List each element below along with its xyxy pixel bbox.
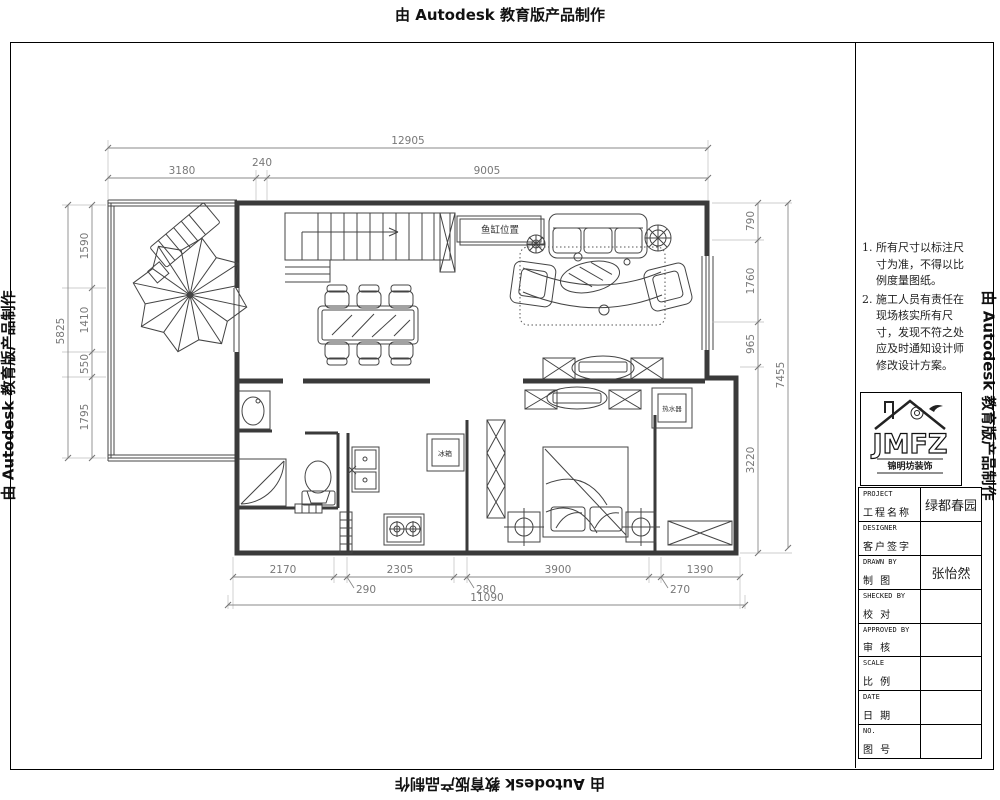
column-hatched [440,213,455,272]
approved-by-en: APPROVED BY [863,626,918,634]
kitchen-sink [348,447,379,492]
sofa [549,214,647,258]
svg-text:1795: 1795 [79,404,91,431]
project-value: 绿都春园 [921,488,981,521]
svg-text:270: 270 [670,584,690,596]
title-block: PROJECT 工程名称 绿都春园 DESIGNER 客户签字 DRAWN BY… [858,487,982,759]
scale-zh: 比 例 [863,673,918,688]
title-row-date: DATE 日 期 [859,691,981,725]
approved-by-zh: 审 核 [863,639,918,654]
fish-tank-label: 鱼缸位置 [481,224,519,236]
svg-text:1410: 1410 [79,307,91,334]
wardrobe-strip [487,420,505,518]
company-logo: JMFZ 锦明坊装饰 [860,392,962,486]
armchair-left [509,260,556,307]
logo-name: JMFZ [871,429,948,460]
date-value [921,691,981,724]
dim-right: 790 1760 965 3220 7455 [745,200,791,556]
number-value [921,725,981,758]
svg-text:2305: 2305 [387,564,414,576]
drawn-by-zh: 制 图 [863,572,918,587]
terrace-walls [108,200,237,461]
title-row-drawn-by: DRAWN BY 制 图 张怡然 [859,556,981,590]
tv-wall-bedroom [525,387,641,409]
coffee-table [558,256,623,298]
note-2-number: 2. [862,292,876,375]
project-en: PROJECT [863,490,918,498]
designer-value [921,522,981,555]
svg-text:290: 290 [356,584,376,596]
project-zh: 工程名称 [863,504,918,519]
svg-text:1590: 1590 [79,233,91,260]
fridge: 冰箱 [427,434,464,471]
note-2-text: 施工人员有责任在现场核实所有尺寸，发现不符之处应及时通知设计师修改设计方案。 [876,292,974,375]
svg-text:965: 965 [745,334,757,354]
bed [543,447,628,537]
number-en: NO. [863,727,918,735]
svg-text:5825: 5825 [55,318,67,345]
water-heater-label: 热水器 [662,404,682,413]
drawn-by-value: 张怡然 [921,556,981,589]
dim-bottom: 2170 290 2305 280 3900 270 1390 11090 [225,564,748,608]
shower [239,459,286,506]
rug [520,247,665,325]
water-heater: 热水器 [652,388,692,428]
dim-left: 5825 1590 1410 550 1795 [55,202,95,461]
svg-text:1760: 1760 [745,268,757,295]
note-2: 2. 施工人员有责任在现场核实所有尺寸，发现不符之处应及时通知设计师修改设计方案… [862,292,974,375]
wash-basin [239,391,270,429]
svg-text:11090: 11090 [470,592,503,604]
cad-sheet: 由 Autodesk 教育版产品制作 由 Autodesk 教育版产品制作 由 … [0,0,1000,800]
note-1-text: 所有尺寸以标注尺寸为准，不得以比例度量图纸。 [876,240,974,290]
kitchen-threshold [340,512,352,553]
nightstand-left [504,508,544,546]
general-notes: 1. 所有尺寸以标注尺寸为准，不得以比例度量图纸。 2. 施工人员有责任在现场核… [862,240,974,376]
dining-chairs [325,285,413,365]
svg-text:2170: 2170 [270,564,297,576]
stairs [285,213,450,282]
svg-text:3180: 3180 [169,165,196,177]
svg-text:1390: 1390 [687,564,714,576]
number-zh: 图 号 [863,741,918,756]
designer-en: DESIGNER [863,524,918,532]
svg-text:3220: 3220 [745,447,757,474]
svg-text:790: 790 [745,211,757,231]
scale-en: SCALE [863,659,918,667]
logo-subtext: 锦明坊装饰 [887,460,932,472]
toilet [302,461,335,505]
checked-by-value [921,590,981,623]
date-en: DATE [863,693,918,701]
title-row-number: NO. 图 号 [859,725,981,758]
title-row-approved-by: APPROVED BY 审 核 [859,624,981,658]
designer-zh: 客户签字 [863,538,918,553]
dining-table [318,306,418,344]
approved-by-value [921,624,981,657]
svg-text:9005: 9005 [474,165,501,177]
title-row-scale: SCALE 比 例 [859,657,981,691]
date-zh: 日 期 [863,707,918,722]
floor-plan-drawing: 鱼缸位置 [0,0,1000,800]
title-row-project: PROJECT 工程名称 绿都春园 [859,488,981,522]
tv-wall-living [543,356,663,380]
plant-left [527,235,545,253]
svg-text:550: 550 [79,354,91,374]
logo-graphic: JMFZ 锦明坊装饰 [861,393,959,483]
svg-text:3900: 3900 [545,564,572,576]
note-1: 1. 所有尺寸以标注尺寸为准，不得以比例度量图纸。 [862,240,974,290]
svg-text:240: 240 [252,157,272,169]
living-room-window [700,256,714,350]
scale-value [921,657,981,690]
closet-cabinet [668,521,732,545]
svg-text:7455: 7455 [775,362,787,389]
note-1-number: 1. [862,240,876,290]
dimension-extension-lines [62,140,792,609]
drawn-by-en: DRAWN BY [863,558,918,566]
title-row-designer: DESIGNER 客户签字 [859,522,981,556]
fridge-label: 冰箱 [438,449,452,458]
svg-text:12905: 12905 [391,135,424,147]
checked-by-zh: 校 对 [863,606,918,621]
armchair-right [643,262,694,313]
dim-top: 12905 3180 240 9005 [105,135,711,181]
fish-tank-box: 鱼缸位置 [457,216,544,245]
stove [384,514,424,545]
checked-by-en: SHECKED BY [863,592,918,600]
title-row-checked-by: SHECKED BY 校 对 [859,590,981,624]
